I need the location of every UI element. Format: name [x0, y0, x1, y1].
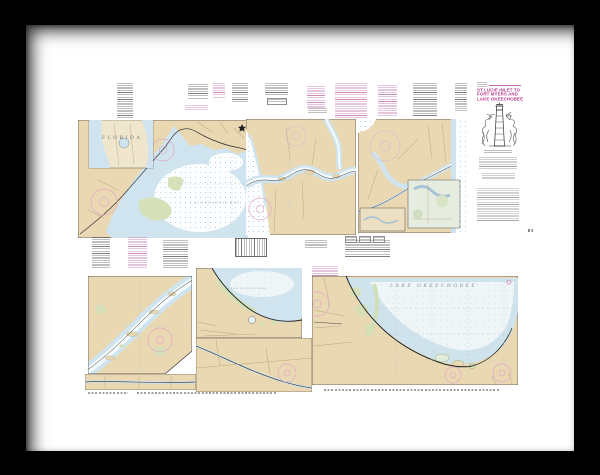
- panel-canal-strip-left: [85, 374, 196, 390]
- mat-board: ST LUCIE INLET TO FORT MYERS AND LAKE OK…: [26, 25, 574, 451]
- chart-note-block: [185, 105, 208, 110]
- inset-florida-overview: [89, 120, 153, 168]
- panel-lake-west-inset: [196, 268, 302, 338]
- edition-note-line: [88, 392, 128, 394]
- tabulation-block: [477, 188, 519, 222]
- panel-canal-strip-mid: [196, 338, 312, 392]
- chart-note-block: [308, 108, 327, 113]
- chart-note-block: [213, 83, 225, 98]
- lighthouse-illustration-icon: [479, 102, 519, 148]
- inset-small-a: [360, 208, 405, 231]
- label-lake-okeechobee-inset: LAKE OKEECHOBEE: [228, 287, 268, 290]
- title-paragraph: [479, 157, 517, 170]
- chart-title: ST LUCIE INLET TO FORT MYERS AND LAKE OK…: [477, 88, 523, 102]
- chart-paper: ST LUCIE INLET TO FORT MYERS AND LAKE OK…: [77, 80, 523, 407]
- chart-note-block: [117, 83, 133, 118]
- panel-st-lucie-inlet: [358, 119, 467, 233]
- chart-note-box: [359, 236, 371, 243]
- plate-number-mark: [528, 229, 533, 232]
- title-paragraph: [482, 173, 515, 180]
- edition-note-line: [324, 389, 499, 391]
- chart-note-block: [128, 237, 147, 268]
- title-block: ST LUCIE INLET TO FORT MYERS AND LAKE OK…: [475, 80, 523, 232]
- chart-note-block: [92, 237, 110, 268]
- edition-note-line: [137, 392, 277, 394]
- panel-waterway-strip: [88, 276, 192, 374]
- chart-note-block: [305, 240, 327, 248]
- chart-note-box: [267, 98, 287, 105]
- chart-note-block: [455, 83, 467, 111]
- label-florida-inset: FLORIDA: [102, 135, 143, 140]
- chart-note-block: [188, 84, 208, 100]
- panel-river-bends: [246, 119, 356, 235]
- agency-mark: [477, 82, 487, 87]
- chart-note-box: [345, 236, 357, 243]
- chart-note-block: [378, 85, 397, 116]
- chart-note-block: [265, 83, 288, 96]
- title-rule: [489, 85, 521, 86]
- chart-note-block: [335, 83, 367, 118]
- chart-note-block: [307, 86, 325, 108]
- scale-note: [484, 150, 512, 154]
- panel-lake-okeechobee: [312, 276, 518, 385]
- chart-note-box: [373, 236, 385, 243]
- chart-note-block: [413, 83, 437, 116]
- label-lake-okeechobee-main: LAKE OKEECHOBEE: [390, 283, 477, 288]
- inset-small-b: [408, 180, 460, 228]
- bridge-clearance-diagram: [235, 238, 267, 257]
- label-caloosahatchee: CALOOSAHATCHEE: [190, 201, 241, 204]
- chart-note-block: [232, 83, 248, 103]
- framed-chart-photo: ST LUCIE INLET TO FORT MYERS AND LAKE OK…: [0, 0, 600, 475]
- chart-note-block: [163, 240, 188, 268]
